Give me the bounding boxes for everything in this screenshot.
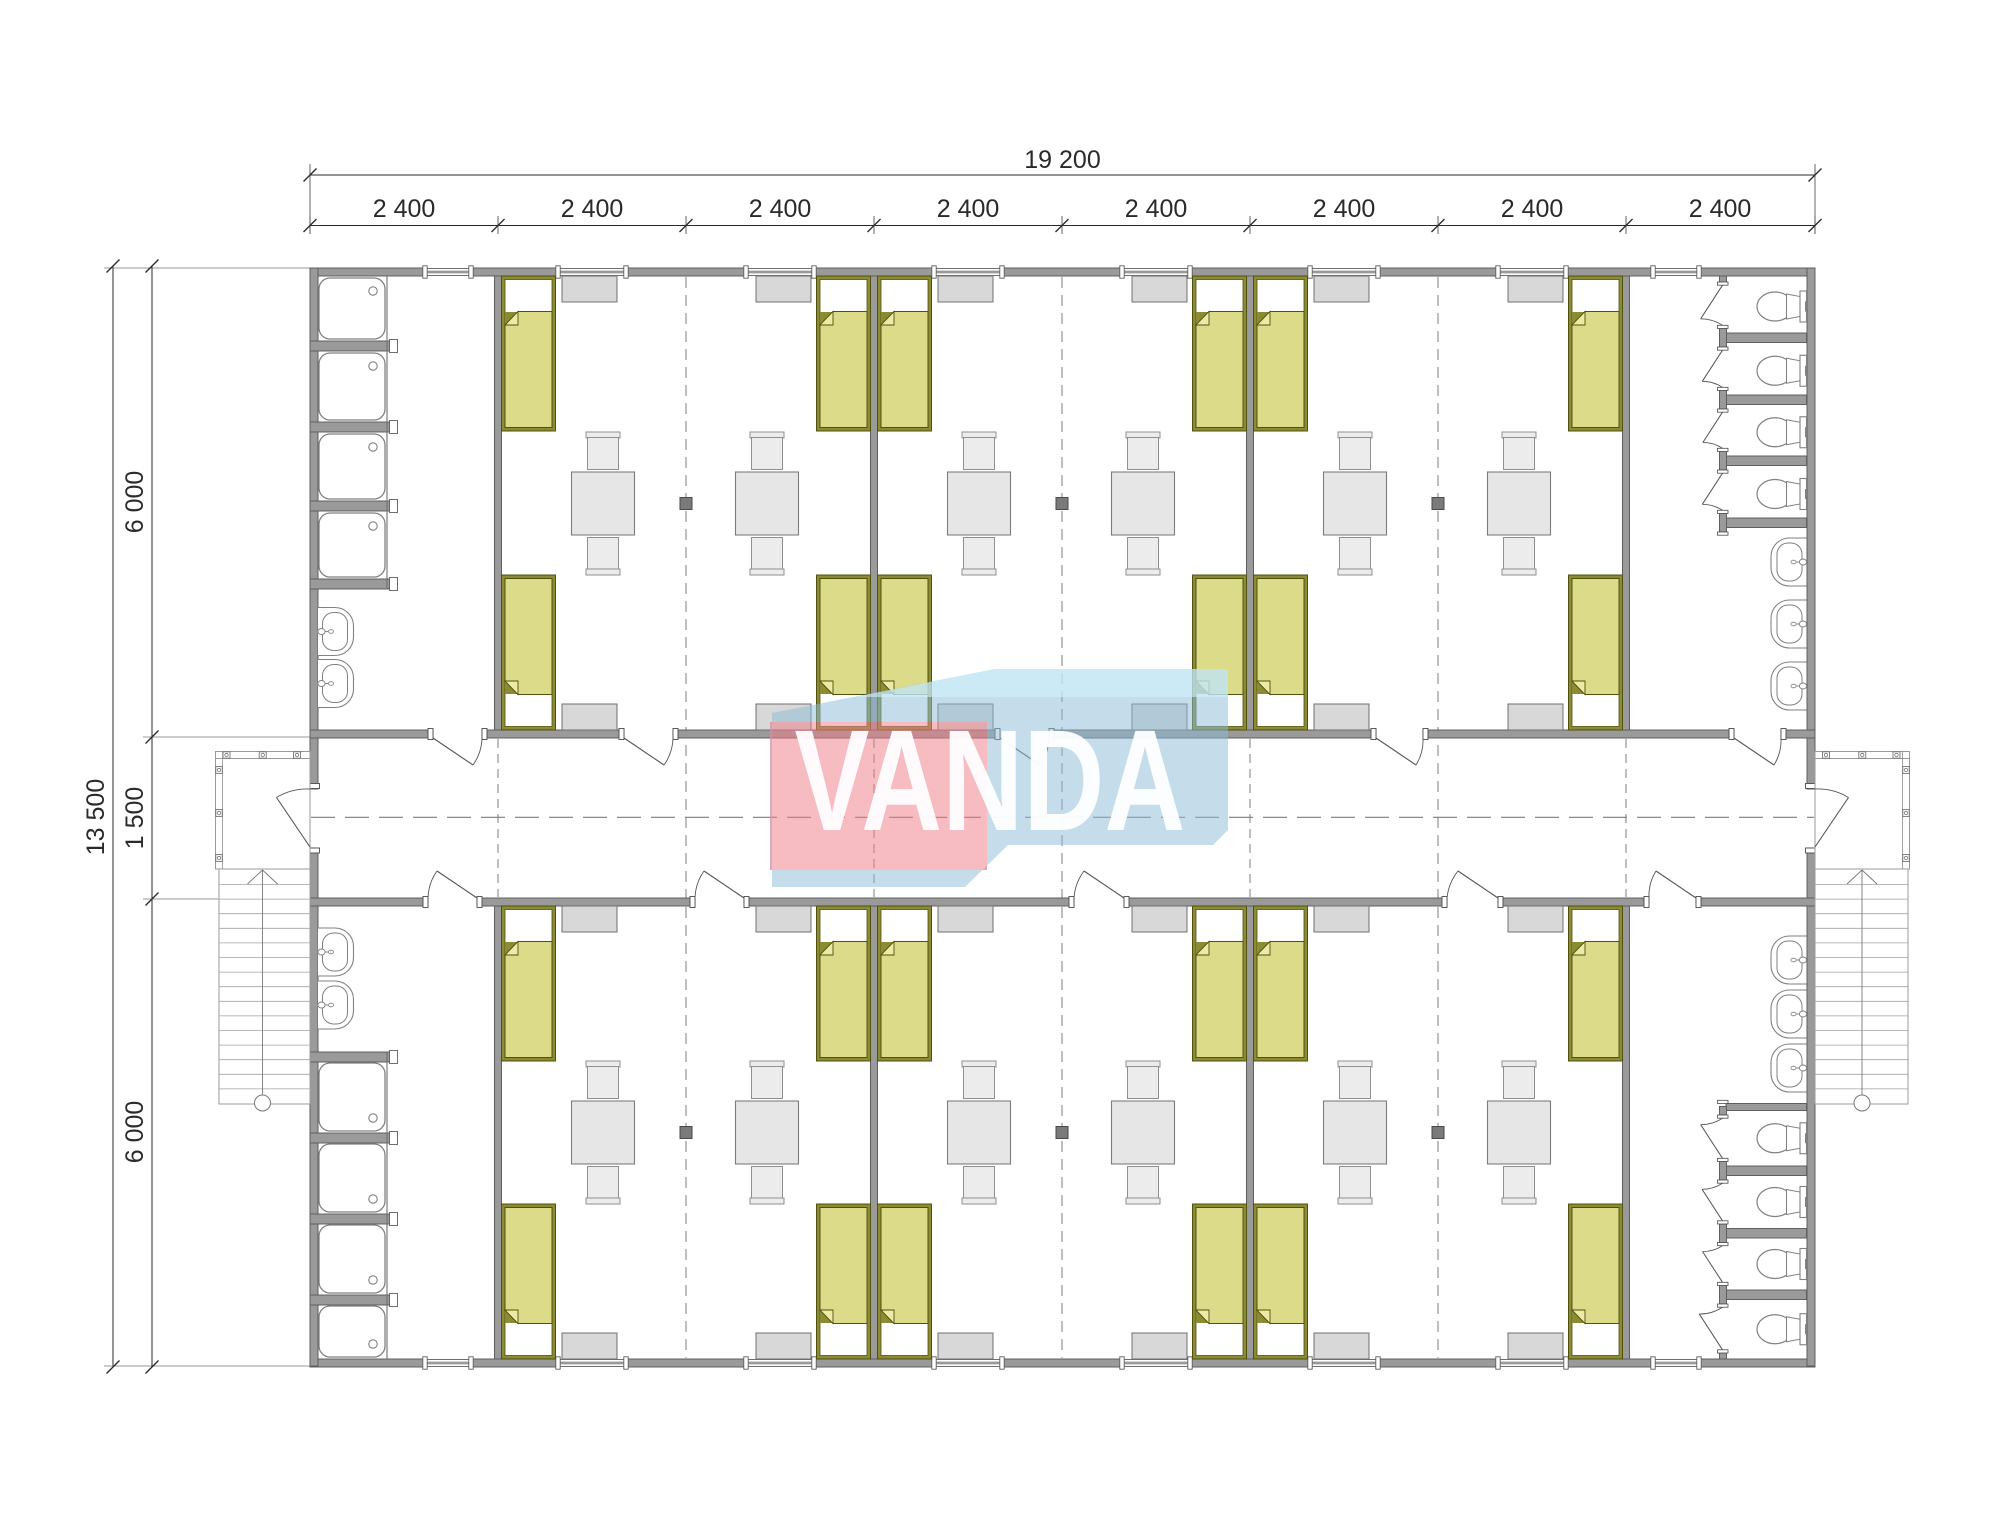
svg-text:2 400: 2 400 [749, 195, 812, 223]
svg-text:6 000: 6 000 [121, 1101, 149, 1164]
svg-text:2 400: 2 400 [561, 195, 624, 223]
svg-text:2 400: 2 400 [1689, 195, 1752, 223]
svg-text:1 500: 1 500 [121, 787, 149, 850]
svg-text:2 400: 2 400 [1125, 195, 1188, 223]
svg-text:VANDA: VANDA [794, 701, 1185, 862]
svg-text:2 400: 2 400 [937, 195, 1000, 223]
svg-text:13 500: 13 500 [82, 779, 110, 855]
svg-text:2 400: 2 400 [373, 195, 436, 223]
svg-text:6 000: 6 000 [121, 471, 149, 534]
svg-text:19 200: 19 200 [1024, 146, 1100, 174]
svg-text:2 400: 2 400 [1501, 195, 1564, 223]
svg-text:2 400: 2 400 [1313, 195, 1376, 223]
